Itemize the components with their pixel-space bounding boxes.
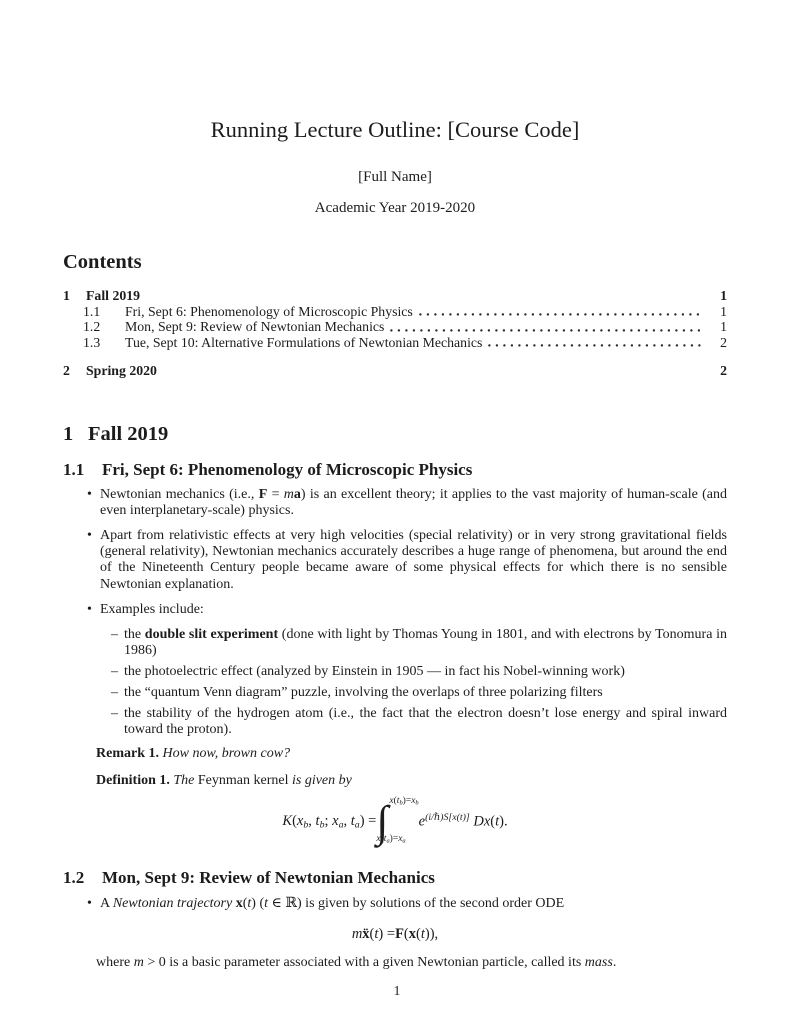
bullet-text: A Newtonian trajectory x(t) (t ∈ ℝ) is g… bbox=[100, 896, 727, 912]
bullet-item: • Apart from relativistic effects at ver… bbox=[63, 528, 727, 592]
definition-paragraph: Definition 1. The Feynman kernel is give… bbox=[96, 773, 727, 789]
toc-entry-label: Fri, Sept 6: Phenomenology of Microscopi… bbox=[125, 304, 413, 320]
toc-entry-page: 1 bbox=[711, 319, 727, 335]
subsection-heading-1-2: 1.2Mon, Sept 9: Review of Newtonian Mech… bbox=[63, 868, 727, 888]
toc-dot-leader bbox=[146, 298, 703, 301]
toc-entry-page: 2 bbox=[711, 363, 727, 379]
equation-rhs: e(i/ℏ)S[x(t)] Dx(t). bbox=[419, 812, 508, 830]
sub-bullet-item: – the stability of the hydrogen atom (i.… bbox=[63, 706, 727, 738]
table-of-contents: 1 Fall 2019 1 1.1 Fri, Sept 6: Phenomeno… bbox=[63, 288, 727, 379]
display-equation-newton-ode: m ẍ(t) = F(x(t)), bbox=[63, 926, 727, 943]
bullet-item: • Newtonian mechanics (i.e., F = ma) is … bbox=[63, 487, 727, 519]
toc-entry-page: 1 bbox=[711, 288, 727, 304]
toc-entry-number: 1.3 bbox=[83, 335, 125, 351]
integral-lower-limit: x(ta)=xa bbox=[376, 835, 405, 845]
toc-dot-leader bbox=[419, 313, 703, 316]
toc-entry-label: Tue, Sept 10: Alternative Formulations o… bbox=[125, 335, 482, 351]
toc-entry-page: 1 bbox=[711, 304, 727, 320]
title-block: Running Lecture Outline: [Course Code] [… bbox=[63, 0, 727, 218]
document-title: Running Lecture Outline: [Course Code] bbox=[63, 116, 727, 143]
document-date: Academic Year 2019-2020 bbox=[63, 200, 727, 217]
subsection-title: Fri, Sept 6: Phenomenology of Microscopi… bbox=[102, 460, 472, 479]
integral-limits: x(tb)=xb x(ta)=xa bbox=[387, 797, 416, 845]
toc-dot-leader bbox=[390, 329, 703, 332]
bullet-text: Apart from relativistic effects at very … bbox=[100, 528, 727, 592]
bullet-marker: • bbox=[87, 487, 100, 519]
sub-bullet-text: the “quantum Venn diagram” puzzle, invol… bbox=[124, 685, 727, 701]
toc-entry-label: Mon, Sept 9: Review of Newtonian Mechani… bbox=[125, 319, 384, 335]
contents-heading: Contents bbox=[63, 250, 727, 275]
dash-marker: – bbox=[111, 627, 124, 659]
toc-dot-leader bbox=[488, 344, 703, 347]
toc-dot-leader bbox=[163, 373, 703, 376]
toc-entry-subsection-1-1[interactable]: 1.1 Fri, Sept 6: Phenomenology of Micros… bbox=[63, 304, 727, 320]
bullet-item: • Examples include: bbox=[63, 602, 727, 618]
sub-bullet-text: the stability of the hydrogen atom (i.e.… bbox=[124, 706, 727, 738]
bullet-item: • A Newtonian trajectory x(t) (t ∈ ℝ) is… bbox=[63, 896, 727, 912]
toc-entry-section-1[interactable]: 1 Fall 2019 1 bbox=[63, 288, 727, 304]
toc-entry-number: 2 bbox=[63, 363, 86, 379]
where-paragraph: where m > 0 is a basic parameter associa… bbox=[96, 955, 727, 971]
sub-bullet-item: – the photoelectric effect (analyzed by … bbox=[63, 664, 727, 680]
section-heading-fall-2019: 1Fall 2019 bbox=[63, 422, 727, 447]
section-title: Fall 2019 bbox=[88, 423, 168, 445]
toc-entry-label: Spring 2020 bbox=[86, 363, 157, 379]
integral-upper-limit: x(tb)=xb bbox=[389, 797, 418, 807]
bullet-text: Newtonian mechanics (i.e., F = ma) is an… bbox=[100, 487, 727, 519]
subsection-title: Mon, Sept 9: Review of Newtonian Mechani… bbox=[102, 868, 435, 887]
document-page: Running Lecture Outline: [Course Code] [… bbox=[0, 0, 794, 1028]
remark-paragraph: Remark 1. How now, brown cow? bbox=[96, 746, 727, 762]
dash-marker: – bbox=[111, 706, 124, 738]
bullet-marker: • bbox=[87, 896, 100, 912]
toc-entry-number: 1.1 bbox=[83, 304, 125, 320]
page-number: 1 bbox=[0, 983, 794, 999]
sub-bullet-item: – the “quantum Venn diagram” puzzle, inv… bbox=[63, 685, 727, 701]
toc-entry-section-2[interactable]: 2 Spring 2020 2 bbox=[63, 363, 727, 379]
document-content: Running Lecture Outline: [Course Code] [… bbox=[0, 0, 794, 971]
toc-entry-subsection-1-3[interactable]: 1.3 Tue, Sept 10: Alternative Formulatio… bbox=[63, 335, 727, 351]
subsection-number: 1.1 bbox=[63, 460, 102, 480]
document-author: [Full Name] bbox=[63, 169, 727, 186]
toc-entry-number: 1.2 bbox=[83, 319, 125, 335]
section-number: 1 bbox=[63, 422, 88, 447]
dash-marker: – bbox=[111, 664, 124, 680]
equation-lhs: K(xb, tb; xa, ta) = bbox=[282, 813, 376, 831]
display-equation-feynman-kernel: K(xb, tb; xa, ta) = ∫ x(tb)=xb x(ta)=xa … bbox=[63, 795, 727, 847]
toc-entry-number: 1 bbox=[63, 288, 86, 304]
bullet-marker: • bbox=[87, 528, 100, 592]
bullet-text: Examples include: bbox=[100, 602, 727, 618]
subsection-number: 1.2 bbox=[63, 868, 102, 888]
sub-bullet-item: – the double slit experiment (done with … bbox=[63, 627, 727, 659]
dash-marker: – bbox=[111, 685, 124, 701]
toc-entry-page: 2 bbox=[711, 335, 727, 351]
bullet-marker: • bbox=[87, 602, 100, 618]
sub-bullet-text: the double slit experiment (done with li… bbox=[124, 627, 727, 659]
sub-bullet-text: the photoelectric effect (analyzed by Ei… bbox=[124, 664, 727, 680]
toc-entry-label: Fall 2019 bbox=[86, 288, 140, 304]
subsection-heading-1-1: 1.1Fri, Sept 6: Phenomenology of Microsc… bbox=[63, 460, 727, 480]
toc-entry-subsection-1-2[interactable]: 1.2 Mon, Sept 9: Review of Newtonian Mec… bbox=[63, 319, 727, 335]
